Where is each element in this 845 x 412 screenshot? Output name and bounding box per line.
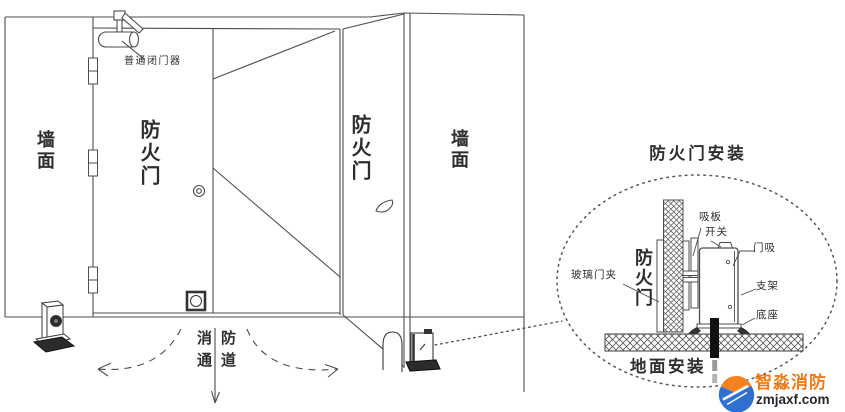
glass-clamp-label: 玻璃门夹 — [571, 271, 617, 282]
door-magnet-label: 门吸 — [753, 244, 776, 255]
detail-title: 防火门安装 — [588, 146, 808, 163]
door-release-plate-icon — [187, 292, 205, 310]
detail-fire-door-label: 防火门 — [634, 248, 652, 308]
brand-site-url: zmjaxf.com — [756, 393, 830, 407]
passage-label-right-column: 防道 — [219, 330, 234, 374]
suction-plate-label: 吸板 — [699, 213, 722, 224]
passage-label-left-column: 消通 — [195, 330, 210, 374]
lock-icon — [194, 186, 205, 197]
closed-fire-door-label: 防火门 — [138, 119, 158, 188]
door-closer-icon — [99, 11, 144, 59]
right-wall-label: 墙面 — [450, 129, 468, 171]
base-label: 底座 — [756, 311, 779, 322]
floor-install-label: 地面安装 — [630, 359, 706, 376]
brand-logo-icon — [719, 376, 754, 412]
fire-door-section — [657, 200, 698, 332]
bracket-label: 支架 — [756, 282, 779, 293]
fire-door-installation-diagram: 普通闭门器 墙面 防火门 防火门 墙面 消通 防道 防火门安装 吸板 开关 门吸… — [0, 0, 845, 412]
floor-slab — [605, 334, 803, 351]
walls-and-doors — [5, 13, 524, 392]
switch-label: 开关 — [705, 228, 728, 239]
floor-door-holder-left-icon — [34, 301, 74, 352]
left-wall-label: 墙面 — [36, 130, 54, 172]
door-swing-arrows — [98, 329, 338, 377]
brand-name: 智淼消防 — [755, 374, 827, 391]
door-handle-icon — [376, 200, 393, 212]
door-closer-label: 普通闭门器 — [124, 57, 182, 67]
anchor-bolt — [710, 318, 719, 383]
floor-door-holder-engaged-icon — [383, 329, 440, 372]
detail-leader-dotted — [435, 321, 562, 345]
open-fire-door-label: 防火门 — [349, 114, 369, 183]
